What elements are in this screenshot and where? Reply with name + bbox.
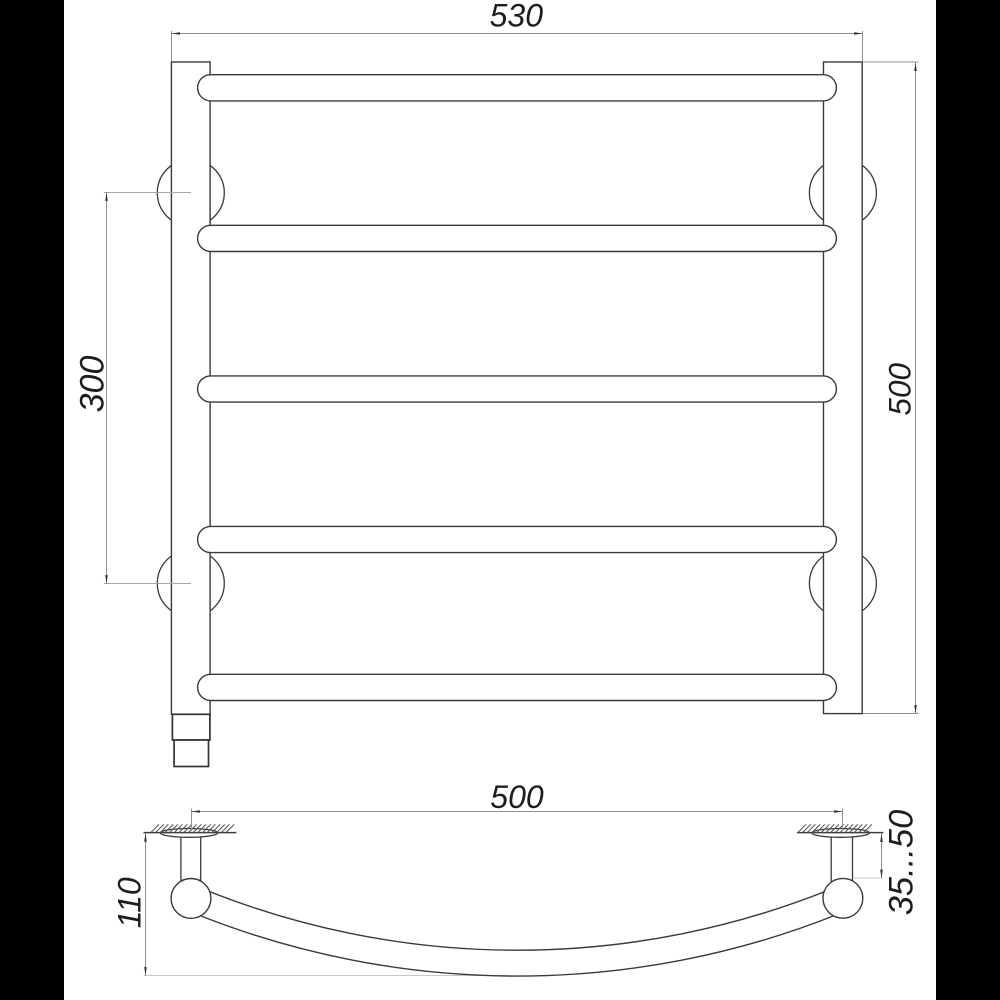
svg-text:110: 110 — [111, 877, 147, 928]
svg-text:500: 500 — [882, 363, 918, 416]
svg-text:530: 530 — [490, 0, 544, 34]
svg-text:500: 500 — [490, 779, 544, 815]
svg-text:300: 300 — [74, 356, 112, 413]
svg-text:35...50: 35...50 — [882, 810, 920, 916]
